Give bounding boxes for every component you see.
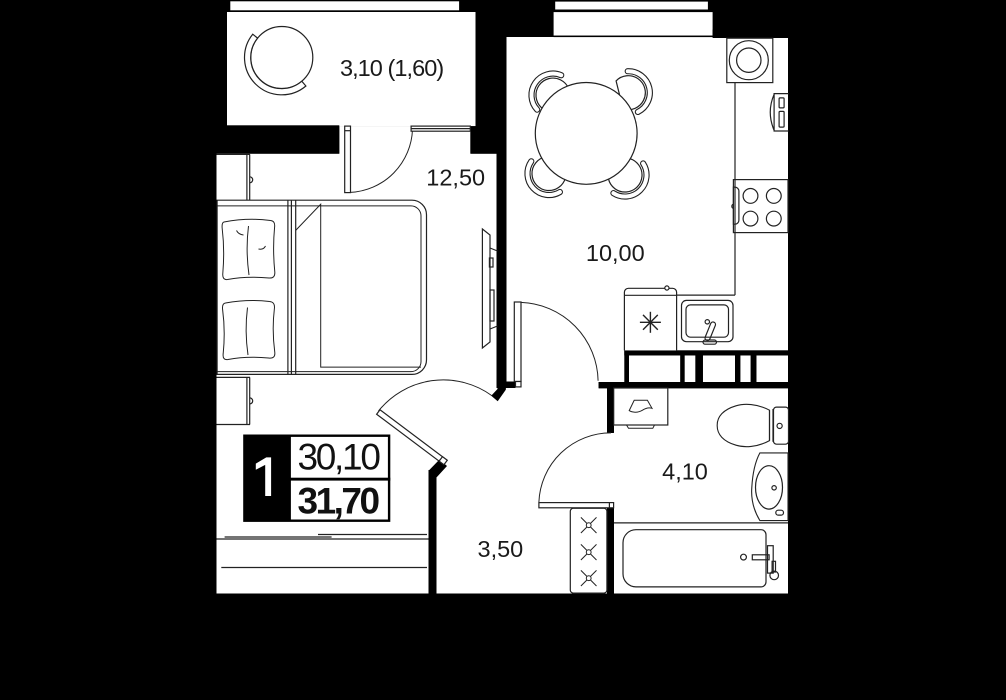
svg-text:31,70: 31,70 bbox=[298, 480, 380, 521]
svg-text:30,10: 30,10 bbox=[298, 437, 381, 478]
svg-text:12,50: 12,50 bbox=[426, 164, 485, 190]
svg-text:3,50: 3,50 bbox=[478, 536, 524, 562]
svg-text:10,00: 10,00 bbox=[586, 240, 645, 266]
svg-text:3,10 (1,60): 3,10 (1,60) bbox=[340, 55, 443, 81]
svg-text:4,10: 4,10 bbox=[662, 459, 708, 485]
